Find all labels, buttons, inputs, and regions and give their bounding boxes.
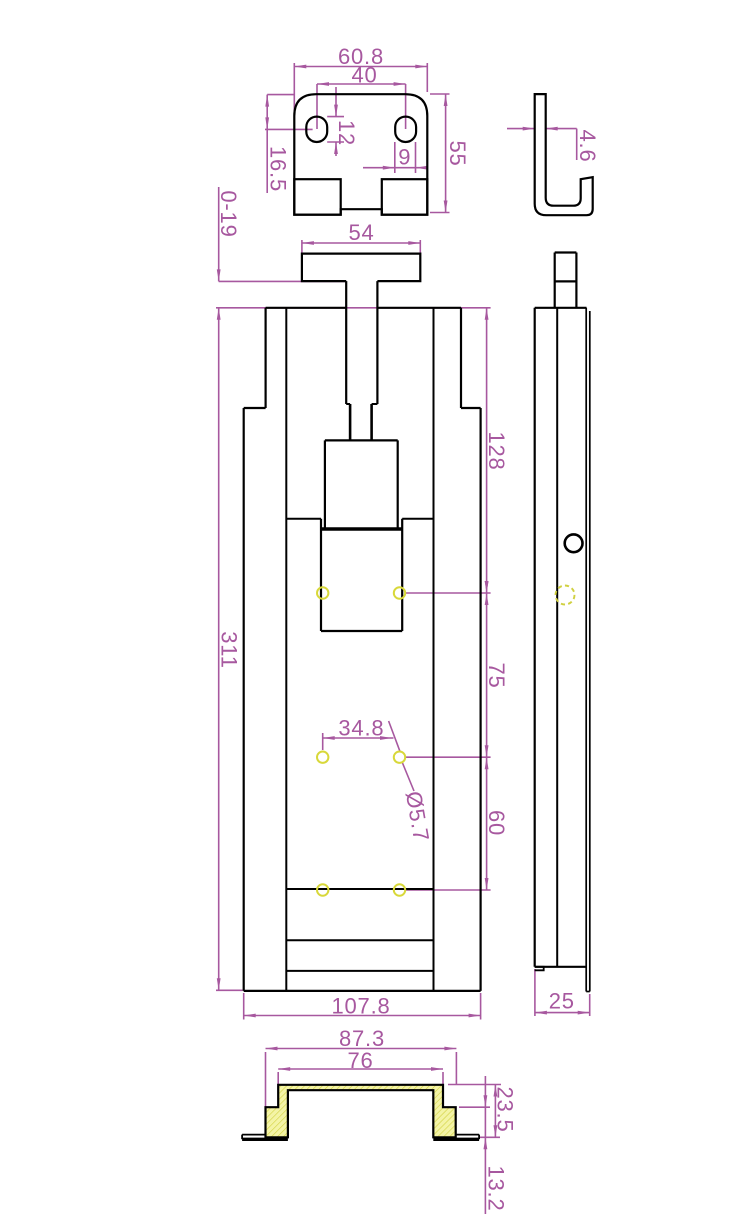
svg-text:55: 55 [445,140,470,166]
svg-text:54: 54 [348,220,374,245]
svg-text:23.5: 23.5 [493,1086,518,1132]
svg-text:75: 75 [484,662,509,688]
svg-text:76: 76 [347,1048,373,1073]
svg-text:Ø5.7: Ø5.7 [401,789,434,843]
svg-text:107.8: 107.8 [331,994,390,1019]
svg-text:60: 60 [484,810,509,836]
svg-text:311: 311 [217,631,242,668]
svg-text:0-19: 0-19 [216,190,241,237]
svg-text:9: 9 [398,145,411,170]
svg-text:128: 128 [484,431,509,470]
svg-text:25: 25 [549,989,575,1014]
svg-text:34.8: 34.8 [338,716,384,741]
svg-text:16.5: 16.5 [265,146,290,192]
svg-text:40: 40 [351,63,377,88]
svg-text:12: 12 [334,120,359,146]
svg-text:13.2: 13.2 [484,1165,509,1211]
svg-text:4.6: 4.6 [575,130,600,163]
